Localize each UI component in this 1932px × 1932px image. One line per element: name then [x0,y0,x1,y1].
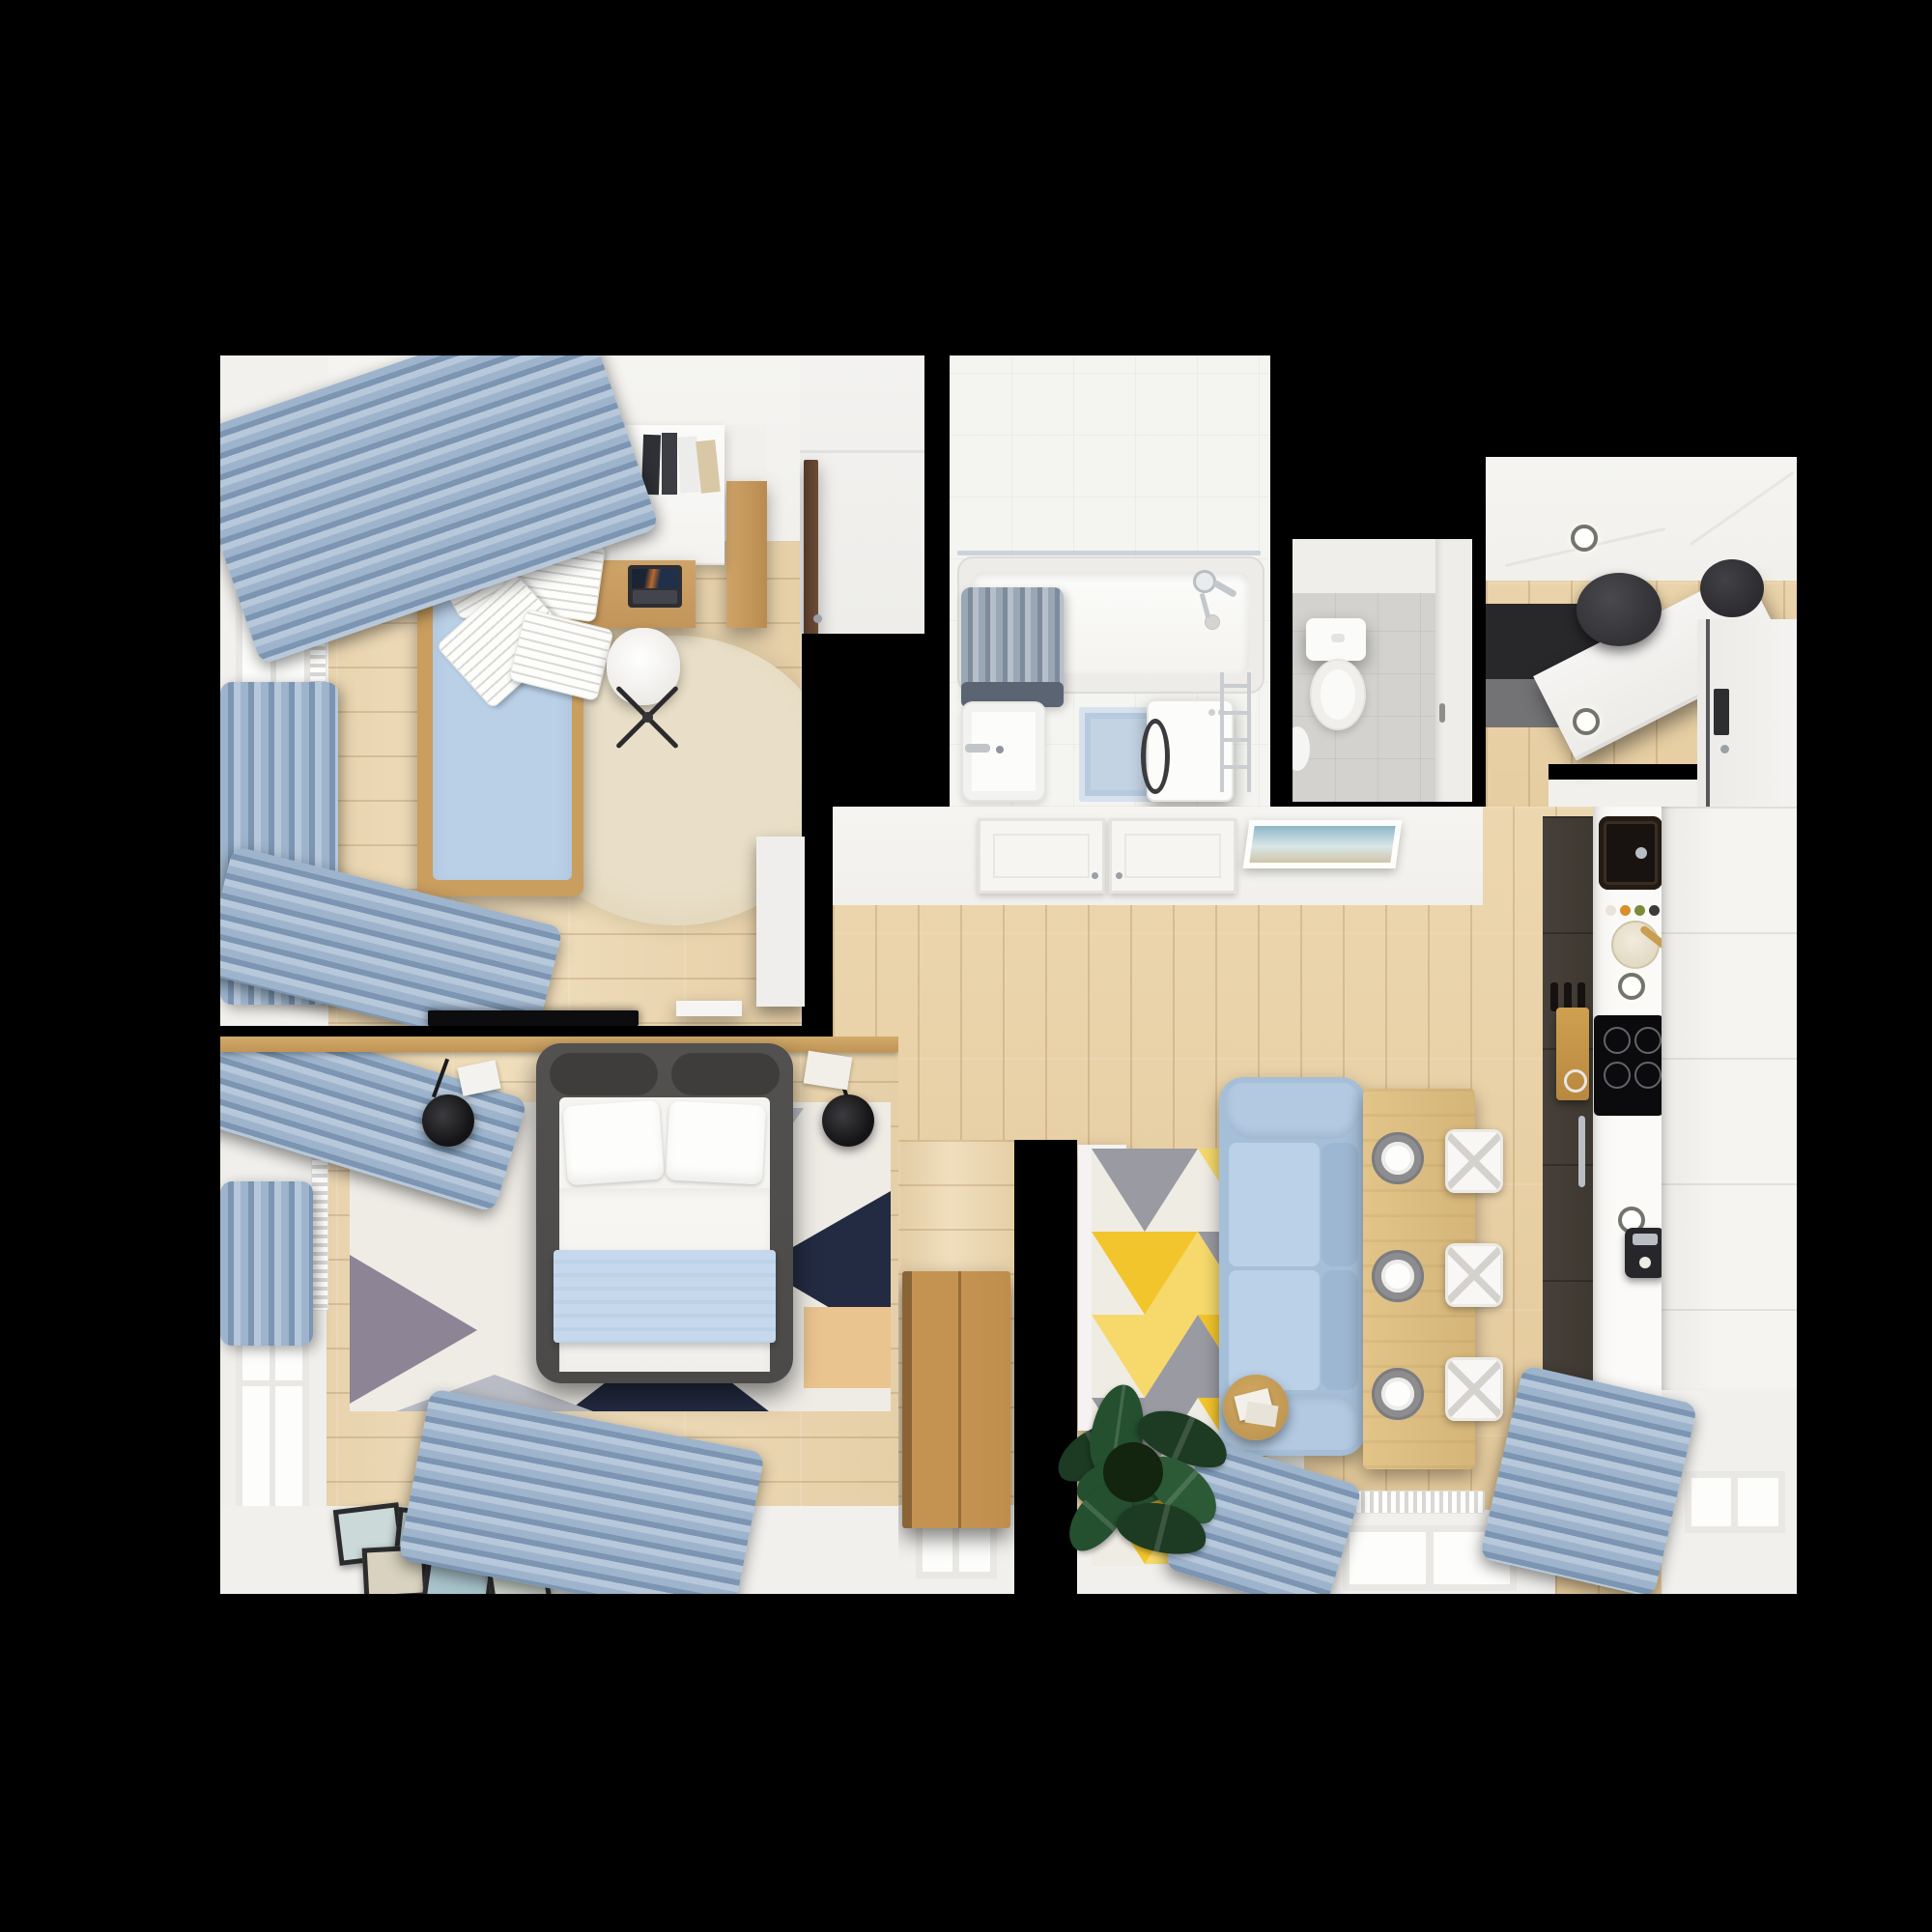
placemat [1372,1250,1424,1302]
room-master-bedroom [220,1037,898,1594]
burner [1604,1062,1631,1089]
ceiling-spotlight [1618,973,1645,1000]
kitchen-sink [1599,816,1662,890]
painting-art [1249,826,1395,863]
window-mullion [1731,1478,1738,1526]
plant-center [1103,1442,1163,1502]
washer-door-ring [1141,719,1170,794]
bowl-with-spoon [1611,921,1660,969]
towel-radiator [1247,672,1251,792]
sofa-back-cushion [1321,1270,1358,1390]
room-bathroom [950,355,1270,807]
towel-radiator [1220,672,1224,792]
window [1685,1471,1785,1533]
jar [1620,905,1631,916]
door-vestibule [800,355,924,634]
flush-button [1331,634,1345,642]
sofa-armrest [1227,1083,1358,1139]
potted-plant [1047,1382,1217,1558]
coffee-cup [1639,1257,1651,1268]
toilet-tank [1306,618,1366,661]
burner [1634,1027,1662,1054]
wardrobe-column [726,481,767,628]
washer-knob [1208,709,1215,716]
shower-mixer [1193,570,1216,593]
towel-rung [1220,684,1251,688]
tall-white-cabinets [1662,807,1797,1390]
towel-rung [1220,738,1251,742]
sofa-seat-cushion [1229,1270,1320,1390]
ceiling-spotlight [1571,525,1598,552]
towel-rung [1220,711,1251,715]
pouf-small [1700,559,1764,617]
dining-chair [1445,1243,1503,1307]
dining-chair [1445,1129,1503,1193]
room-toilet [1293,539,1472,802]
side-table [1223,1375,1289,1440]
headboard-cushion [550,1053,658,1095]
window-mullion [1426,1532,1434,1584]
coffee-machine-top [1633,1234,1658,1245]
laptop-screen [632,569,678,588]
door-handle [1092,872,1098,879]
entry-wall [1486,457,1797,581]
jar [1634,905,1645,916]
blue-curtain [398,1388,765,1594]
oven-handle [1578,1116,1585,1187]
glass-screen [957,551,1261,555]
wardrobe-top [726,425,767,481]
door-stopper [1714,689,1729,735]
window-mullion [952,1527,959,1572]
blue-curtain [220,1181,313,1346]
book [662,433,677,495]
placemat [1372,1368,1424,1420]
sofa-seat-cushion [1229,1143,1320,1266]
window-mullion [242,1380,302,1386]
door-handle [1116,872,1122,879]
toilet-bowl [1310,659,1366,730]
headboard-cushion [671,1053,780,1095]
magazine [1244,1402,1278,1428]
laptop-keyboard [633,590,677,604]
laptop [628,565,682,608]
sofa-back-cushion [1321,1143,1358,1266]
plate [1381,1260,1414,1293]
basin-drain [996,746,1004,753]
drawer-slot [1550,982,1558,1011]
seascape-painting [1242,820,1402,868]
white-pillow [562,1100,664,1186]
bedroom-nook [898,1140,1014,1594]
room-kids-bedroom [220,355,802,1026]
door-handle [1439,703,1445,723]
coffee-machine [1625,1228,1665,1278]
double-door-right-leaf [1109,818,1236,894]
magazine [804,1051,853,1091]
side-wall [1435,539,1472,802]
jar [1649,905,1660,916]
pouf-large [1577,573,1662,646]
dresser-seam [958,1271,961,1528]
hall-cabinet [756,837,805,1007]
window [916,1520,997,1578]
wall-tv [428,1010,639,1026]
spice-jars [1605,897,1662,923]
floorplan-render [0,0,1932,1932]
placemat [1372,1132,1424,1184]
plate [1381,1378,1414,1410]
white-pillow [666,1100,766,1184]
plate [1381,1142,1414,1175]
basin-faucet [965,744,990,753]
sink-faucet [1635,847,1647,859]
cooktop [1594,1015,1663,1116]
double-door-left-leaf [978,818,1105,894]
ceiling-spotlight [1573,708,1600,735]
floor-seam [800,450,924,453]
dining-chair [1445,1357,1503,1421]
door-handle [1720,745,1729,753]
dresser [902,1271,1010,1528]
door-handle [813,614,822,623]
reading-lamp [422,1094,474,1147]
burner [1634,1062,1662,1089]
jar [1605,905,1616,916]
cutting-board [1556,1008,1589,1100]
rug-shape [804,1307,891,1388]
double-bed [536,1043,793,1383]
open-door-edge [804,460,818,634]
wall-shelf [676,1001,742,1016]
radiator [311,1151,328,1311]
chair-hub [642,712,653,723]
towel-rung [1220,765,1251,769]
wash-basin [961,701,1046,802]
blue-blanket [554,1250,776,1343]
board-handle [1564,1069,1587,1093]
reading-lamp [822,1094,874,1147]
burner [1604,1027,1631,1054]
